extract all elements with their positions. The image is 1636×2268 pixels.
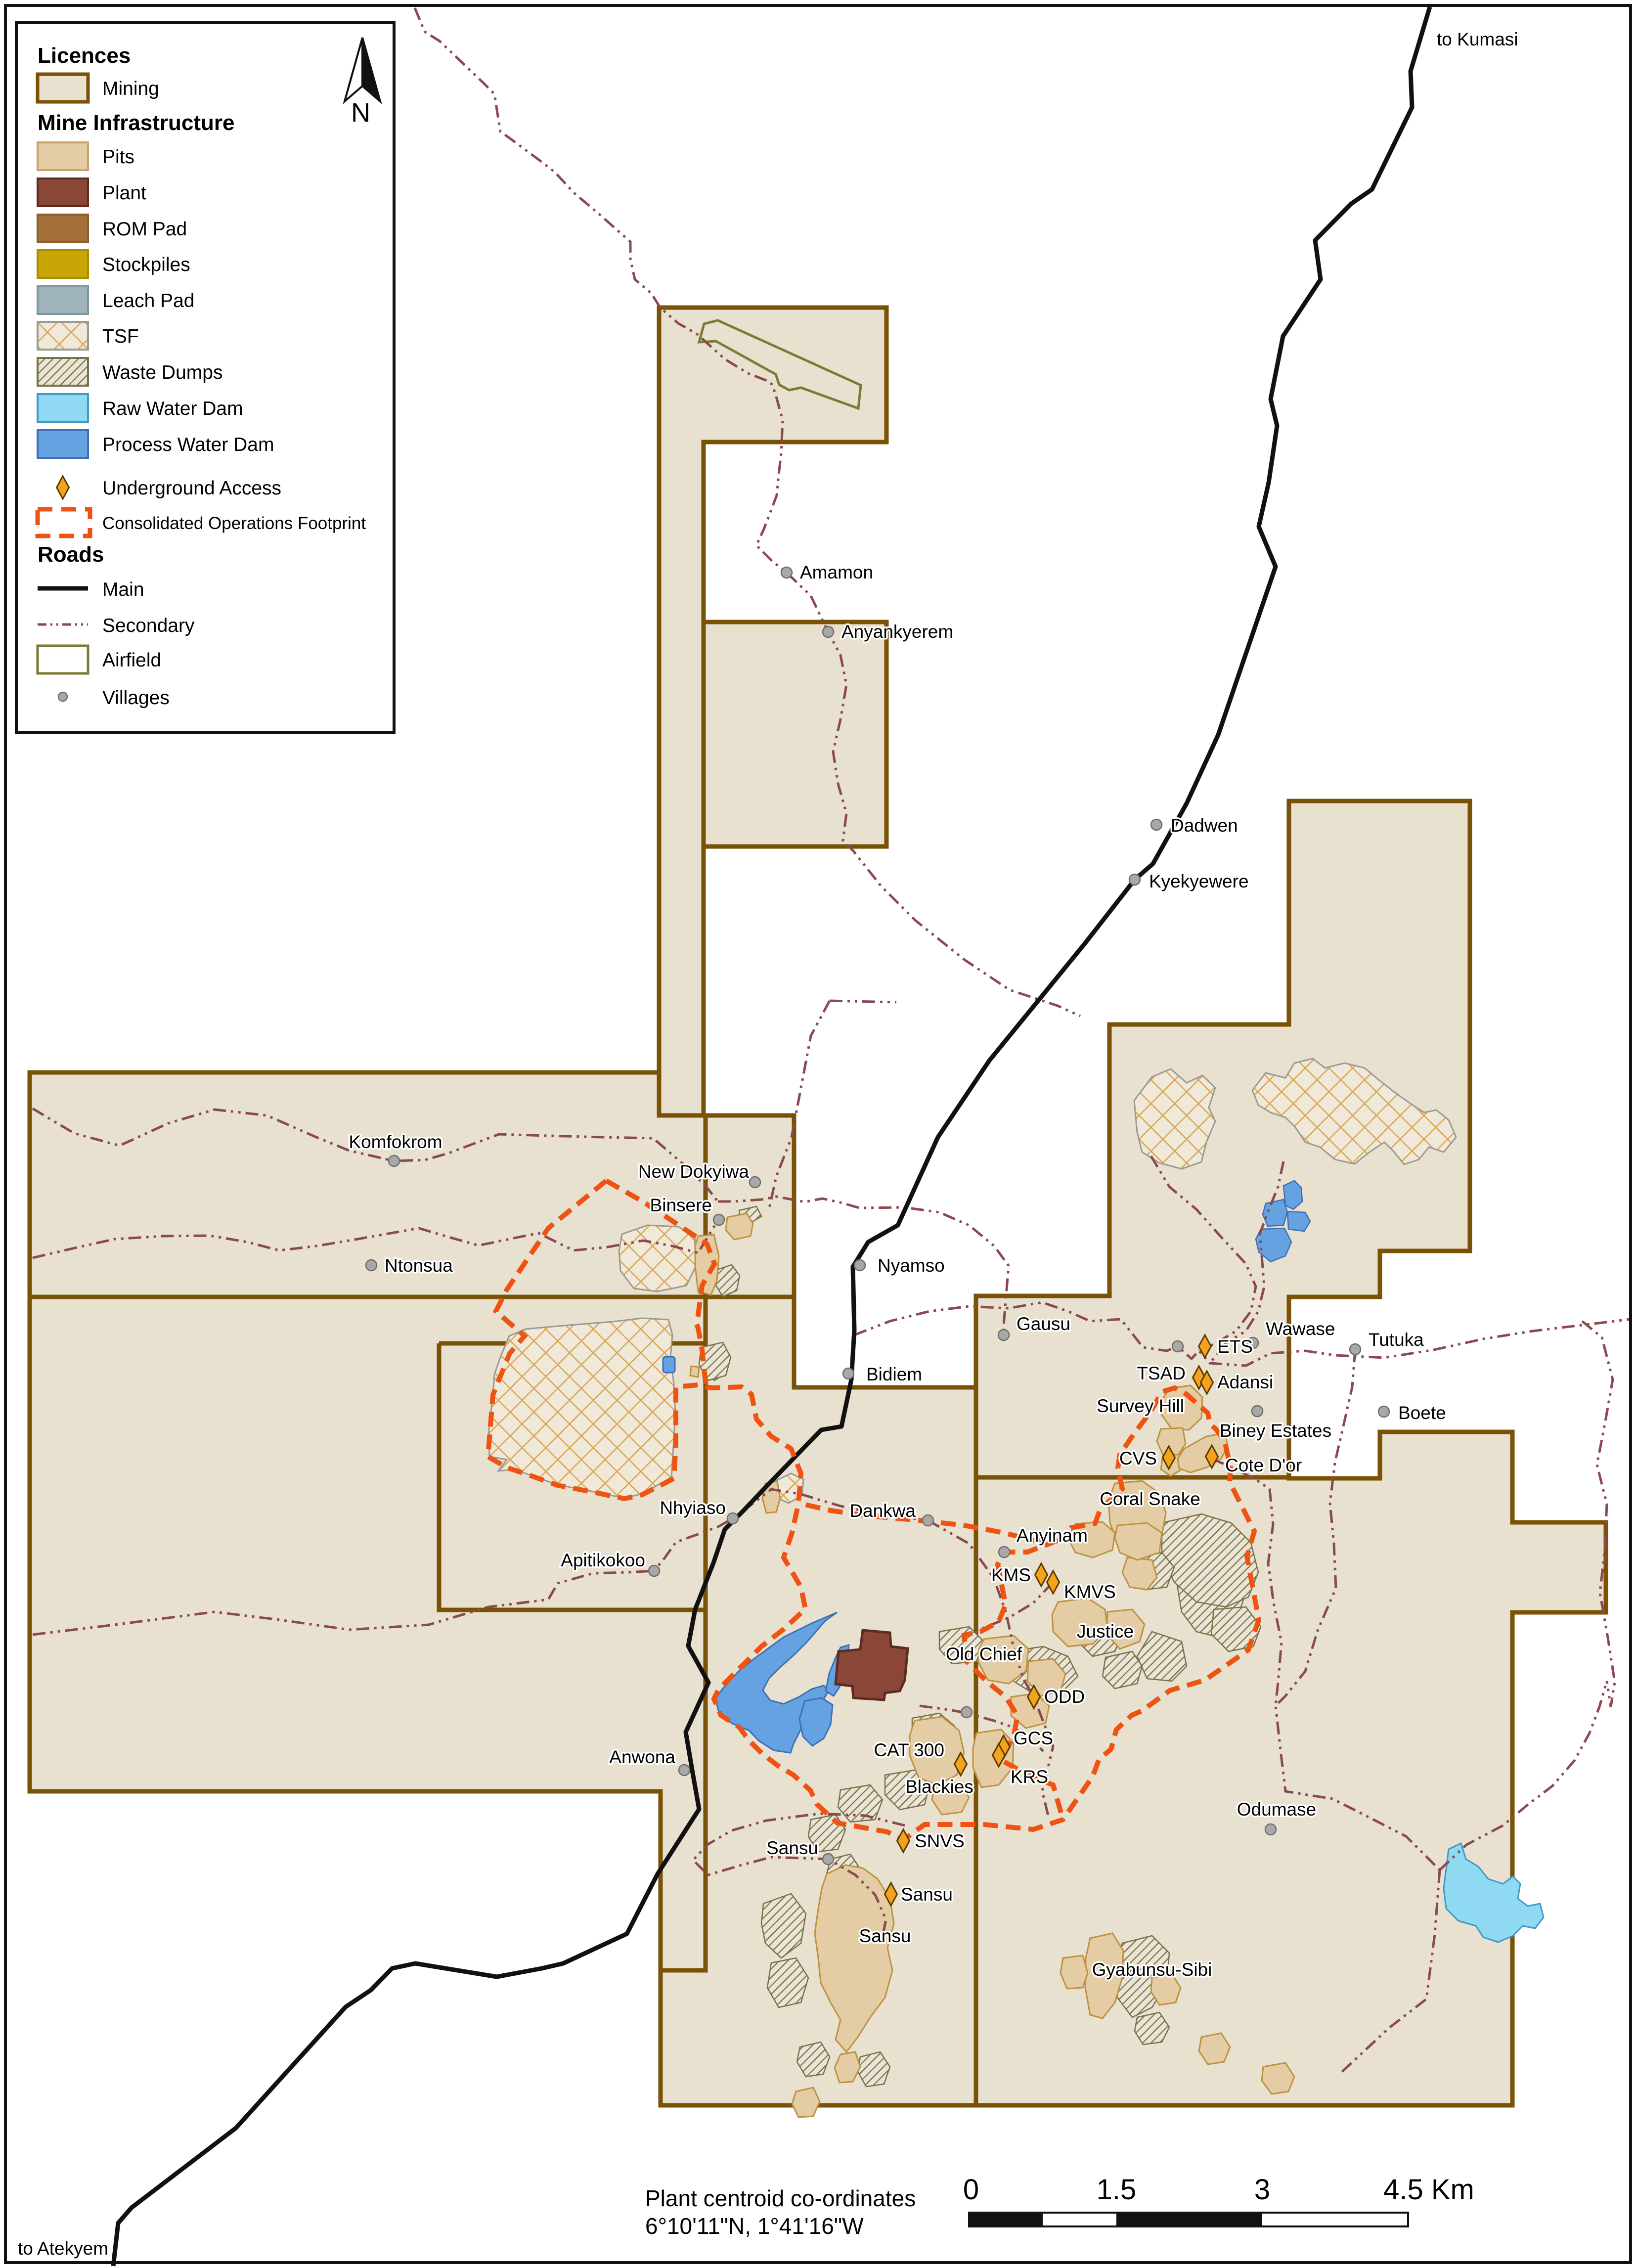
svg-text:Anwona: Anwona	[609, 1747, 675, 1767]
svg-text:Villages: Villages	[102, 687, 170, 709]
svg-text:KMS: KMS	[991, 1565, 1031, 1585]
svg-text:4.5 Km: 4.5 Km	[1383, 2174, 1474, 2206]
svg-text:Raw Water Dam: Raw Water Dam	[102, 398, 243, 419]
svg-text:Sansu: Sansu	[901, 1884, 953, 1905]
svg-text:1.5: 1.5	[1097, 2174, 1137, 2206]
svg-text:Airfield: Airfield	[102, 650, 161, 671]
svg-text:Bidiem: Bidiem	[866, 1364, 922, 1384]
svg-text:Nyamso: Nyamso	[878, 1255, 945, 1276]
svg-text:New Dokyiwa: New Dokyiwa	[638, 1161, 750, 1182]
svg-text:Adansi: Adansi	[1217, 1372, 1273, 1392]
svg-text:ROM Pad: ROM Pad	[102, 219, 187, 240]
svg-text:Tutuka: Tutuka	[1369, 1330, 1424, 1350]
svg-text:KRS: KRS	[1011, 1767, 1048, 1787]
svg-text:Plant: Plant	[102, 182, 146, 204]
svg-text:CAT 300: CAT 300	[874, 1740, 944, 1760]
svg-text:KMVS: KMVS	[1064, 1582, 1116, 1602]
svg-text:Consolidated Operations Footpr: Consolidated Operations Footprint	[102, 514, 366, 533]
svg-text:TSAD: TSAD	[1137, 1363, 1186, 1383]
svg-text:TSF: TSF	[102, 326, 139, 347]
svg-text:Survey Hill: Survey Hill	[1097, 1396, 1184, 1416]
svg-text:Secondary: Secondary	[102, 615, 195, 636]
svg-text:Ntonsua: Ntonsua	[385, 1255, 453, 1276]
svg-text:Plant centroid co-ordinates: Plant centroid co-ordinates	[645, 2185, 916, 2211]
svg-text:Roads: Roads	[38, 542, 104, 567]
svg-text:Underground Access: Underground Access	[102, 478, 281, 499]
svg-text:Leach Pad: Leach Pad	[102, 290, 195, 311]
svg-text:Blackies: Blackies	[905, 1777, 973, 1797]
svg-text:0: 0	[963, 2174, 979, 2206]
svg-text:Boete: Boete	[1398, 1403, 1446, 1423]
svg-text:Amamon: Amamon	[800, 562, 873, 582]
svg-text:ODD: ODD	[1044, 1687, 1085, 1707]
svg-text:GCS: GCS	[1014, 1728, 1053, 1748]
svg-text:Coral Snake: Coral Snake	[1100, 1489, 1200, 1509]
svg-text:Gausu: Gausu	[1017, 1314, 1070, 1334]
svg-text:Sansu: Sansu	[859, 1926, 911, 1946]
svg-text:ETS: ETS	[1217, 1336, 1253, 1357]
svg-text:Old Chief: Old Chief	[946, 1644, 1022, 1664]
svg-text:Biney Estates: Biney Estates	[1220, 1421, 1331, 1441]
svg-text:Gyabunsu-Sibi: Gyabunsu-Sibi	[1092, 1959, 1212, 1980]
svg-text:Komfokrom: Komfokrom	[349, 1132, 442, 1152]
svg-text:to Atekyem: to Atekyem	[18, 2238, 108, 2259]
svg-text:Anyankyerem: Anyankyerem	[841, 622, 953, 642]
svg-text:Licences: Licences	[38, 44, 131, 68]
svg-text:Nhyiaso: Nhyiaso	[660, 1498, 726, 1518]
svg-text:Pits: Pits	[102, 146, 134, 168]
svg-text:Binsere: Binsere	[650, 1195, 712, 1215]
svg-text:Process Water Dam: Process Water Dam	[102, 434, 274, 455]
svg-text:Odumase: Odumase	[1237, 1799, 1316, 1820]
svg-text:Sansu: Sansu	[766, 1838, 818, 1858]
svg-text:SNVS: SNVS	[915, 1831, 965, 1851]
svg-text:Justice: Justice	[1077, 1621, 1134, 1642]
svg-text:Dadwen: Dadwen	[1171, 815, 1238, 836]
svg-text:Kyekyewere: Kyekyewere	[1149, 871, 1249, 891]
svg-text:Anyinam: Anyinam	[1017, 1525, 1088, 1546]
svg-text:Waste Dumps: Waste Dumps	[102, 362, 222, 383]
svg-text:N: N	[351, 98, 370, 128]
svg-text:Stockpiles: Stockpiles	[102, 254, 190, 275]
svg-text:Mining: Mining	[102, 78, 159, 99]
svg-text:Apitikokoo: Apitikokoo	[561, 1550, 645, 1570]
svg-text:Wawase: Wawase	[1266, 1319, 1335, 1339]
svg-text:Cote D'or: Cote D'or	[1225, 1455, 1302, 1475]
svg-text:Mine Infrastructure: Mine Infrastructure	[38, 111, 235, 135]
svg-text:CVS: CVS	[1119, 1448, 1157, 1468]
svg-text:Dankwa: Dankwa	[849, 1501, 916, 1521]
svg-text:to Kumasi: to Kumasi	[1437, 29, 1518, 49]
svg-text:3: 3	[1254, 2174, 1270, 2206]
svg-text:6°10'11"N, 1°41'16"W: 6°10'11"N, 1°41'16"W	[645, 2213, 864, 2239]
svg-text:Main: Main	[102, 579, 144, 600]
